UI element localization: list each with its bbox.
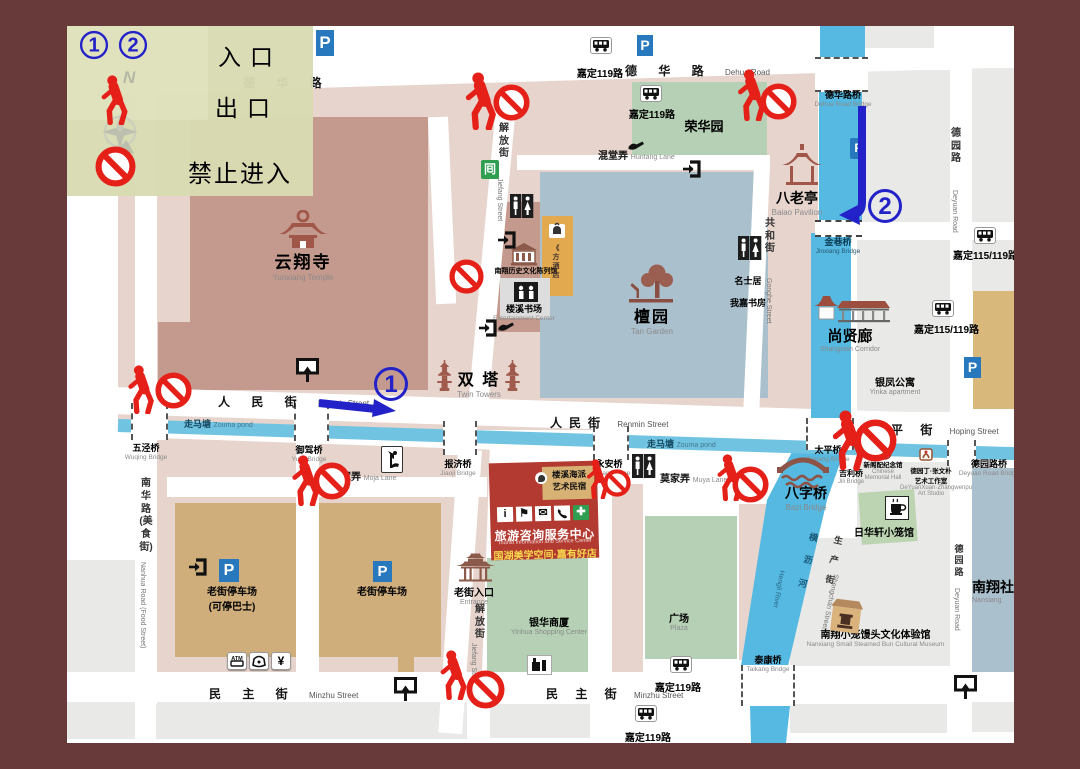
svg-text:2: 2 — [127, 35, 138, 57]
svg-text:1: 1 — [384, 371, 397, 398]
svg-text:1: 1 — [88, 35, 99, 57]
